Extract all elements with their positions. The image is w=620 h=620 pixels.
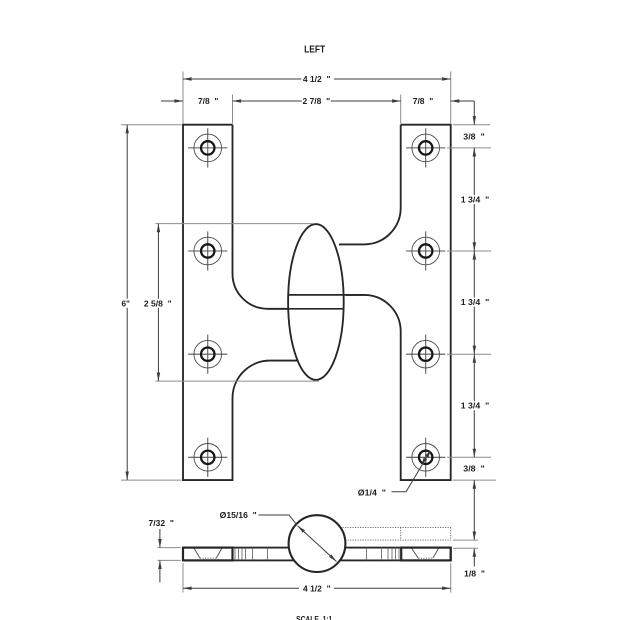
svg-text:3/8 ": 3/8 " [463, 132, 485, 142]
svg-text:1/8 ": 1/8 " [464, 568, 485, 578]
svg-text:1 3/4 ": 1 3/4 " [461, 195, 490, 205]
svg-text:1 3/4 ": 1 3/4 " [461, 401, 490, 411]
svg-text:Ø15/16 ": Ø15/16 " [220, 510, 257, 520]
svg-text:1 3/4 ": 1 3/4 " [461, 297, 490, 307]
svg-text:SCALE 1:1: SCALE 1:1 [296, 614, 332, 620]
svg-text:2 7/8 ": 2 7/8 " [303, 96, 331, 106]
svg-text:LEFT: LEFT [304, 44, 325, 55]
svg-text:Ø1/4 ": Ø1/4 " [358, 487, 386, 497]
svg-text:4 1/2 ": 4 1/2 " [303, 583, 331, 593]
svg-text:3/8 ": 3/8 " [463, 464, 485, 474]
svg-text:7/32 ": 7/32 " [149, 518, 174, 528]
svg-text:2 5/8 ": 2 5/8 " [144, 298, 172, 308]
svg-text:7/8 ": 7/8 " [413, 96, 434, 106]
svg-text:4 1/2 ": 4 1/2 " [303, 74, 331, 84]
svg-text:7/8 ": 7/8 " [198, 96, 219, 106]
svg-text:6": 6" [121, 298, 130, 308]
